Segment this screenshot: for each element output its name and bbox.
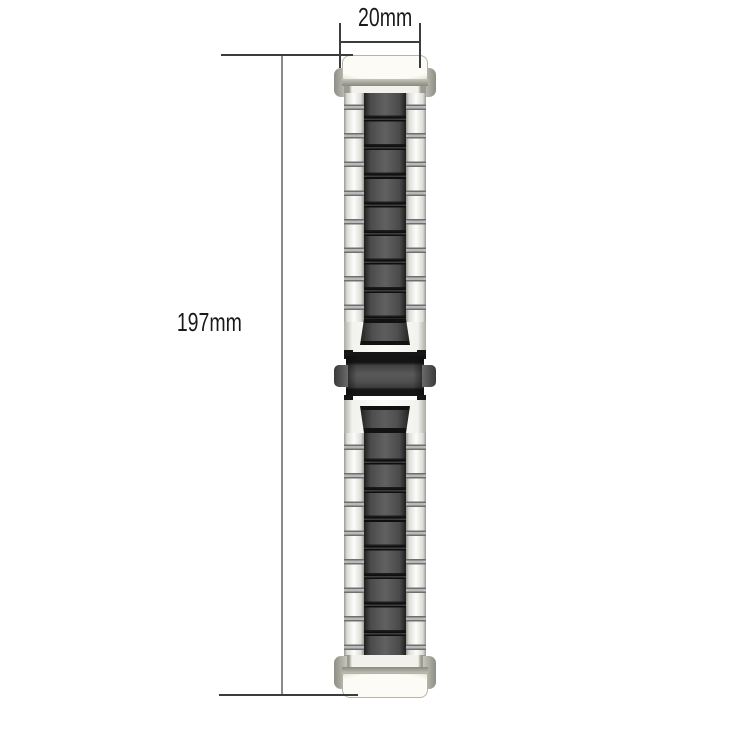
- length-dimension-label: 197mm: [149, 307, 269, 337]
- top-cap-bar: [342, 79, 428, 86]
- width-dimension-label: 20mm: [340, 2, 430, 32]
- top-end-cap: [342, 55, 428, 80]
- upper-links-right-column: [406, 93, 426, 322]
- length-extension-line-bottom: [219, 694, 358, 696]
- upper-link-section: [344, 93, 426, 322]
- clasp: [334, 350, 436, 400]
- width-dimension-tick-right: [419, 23, 421, 68]
- top-lug-strip: [344, 86, 426, 93]
- length-dimension-text: 197mm: [176, 307, 241, 337]
- upper-links-center-column: [364, 93, 406, 322]
- lower-links-center-column: [364, 433, 406, 655]
- clasp-button-right: [422, 365, 436, 387]
- width-dimension-tick-left: [339, 23, 341, 68]
- width-dimension-line: [339, 41, 421, 43]
- length-dimension-line: [281, 55, 283, 695]
- lower-wide-center-link: [360, 406, 410, 433]
- width-dimension-text: 20mm: [358, 2, 412, 32]
- watch-band: [344, 55, 426, 698]
- upper-wide-center-link: [360, 319, 410, 345]
- lower-link-section: [344, 433, 426, 655]
- lower-links-right-column: [406, 433, 426, 655]
- length-extension-line-top: [221, 54, 353, 56]
- upper-links-left-column: [344, 93, 364, 322]
- product-image: 20mm 197mm: [0, 0, 750, 750]
- clasp-body: [346, 356, 424, 396]
- lower-links-left-column: [344, 433, 364, 655]
- clasp-button-left: [334, 365, 348, 387]
